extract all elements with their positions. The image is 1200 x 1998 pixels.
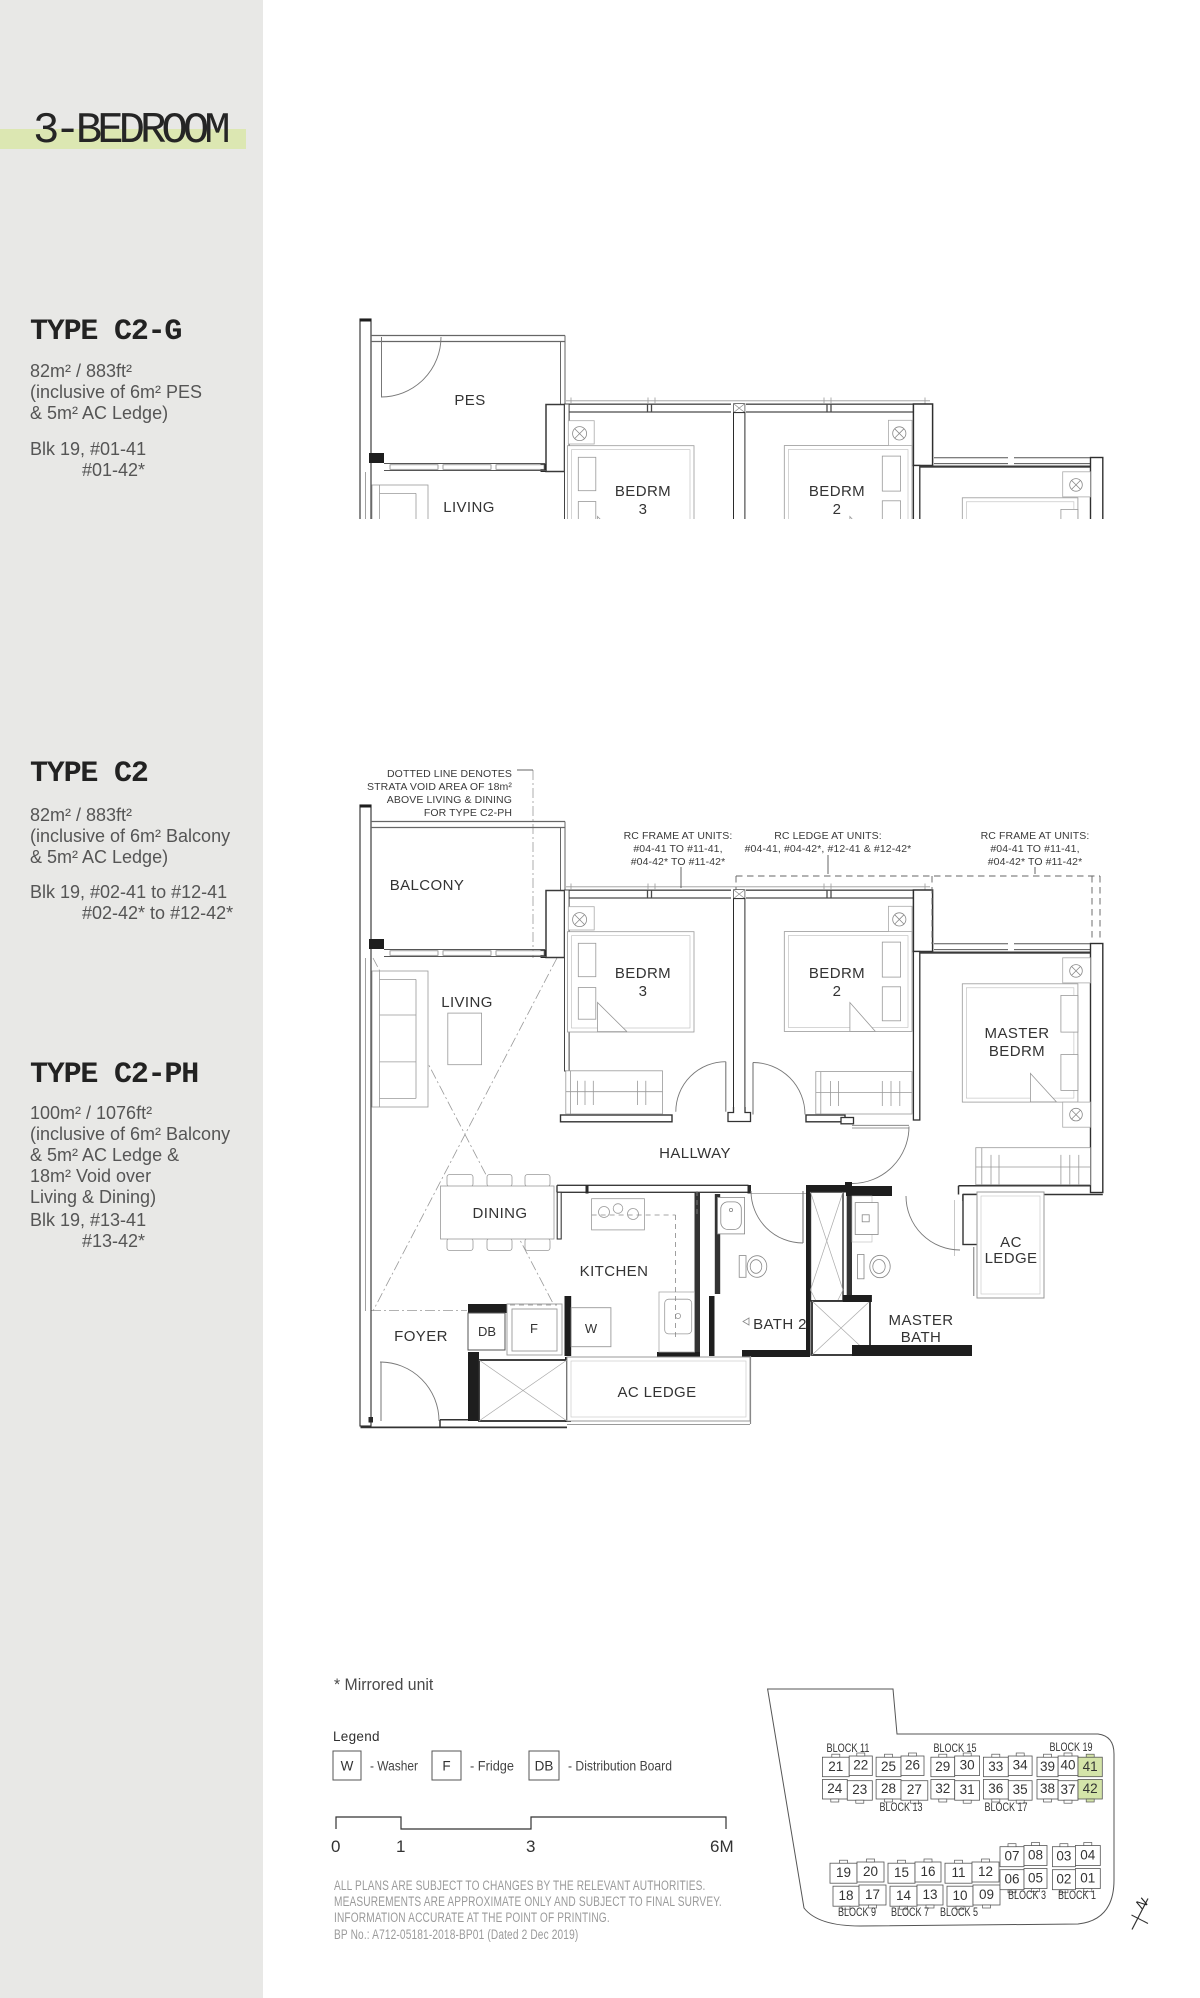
- svg-text:07: 07: [1004, 1849, 1019, 1864]
- svg-text:BLOCK 11: BLOCK 11: [827, 1741, 870, 1755]
- svg-text:25: 25: [881, 1759, 896, 1774]
- svg-text:BATH 2: BATH 2: [753, 1316, 807, 1333]
- svg-text:3: 3: [639, 501, 648, 518]
- svg-text:BLOCK 3: BLOCK 3: [1008, 1888, 1046, 1902]
- svg-text:09: 09: [979, 1887, 994, 1902]
- svg-text:F: F: [442, 1759, 450, 1774]
- svg-text:2: 2: [833, 983, 842, 1000]
- svg-text:N: N: [1133, 1895, 1150, 1913]
- svg-text:08: 08: [1028, 1847, 1043, 1862]
- svg-text:29: 29: [935, 1759, 950, 1774]
- svg-text:26: 26: [905, 1758, 920, 1773]
- svg-text:36: 36: [988, 1781, 1003, 1796]
- svg-text:19: 19: [836, 1865, 851, 1880]
- svg-text:MASTER: MASTER: [985, 1025, 1050, 1042]
- svg-text:22: 22: [853, 1758, 868, 1773]
- svg-text:DB: DB: [478, 1324, 496, 1339]
- svg-text:#04-41 TO #11-41,: #04-41 TO #11-41,: [990, 843, 1079, 855]
- svg-text:#04-42* TO #11-42*: #04-42* TO #11-42*: [631, 856, 726, 868]
- svg-text:#04-41 TO #11-41,: #04-41 TO #11-41,: [633, 843, 722, 855]
- svg-text:38: 38: [1040, 1781, 1055, 1796]
- svg-text:41: 41: [1083, 1759, 1098, 1774]
- svg-text:05: 05: [1028, 1870, 1043, 1885]
- svg-text:03: 03: [1056, 1849, 1071, 1864]
- svg-text:HALLWAY: HALLWAY: [659, 1145, 731, 1162]
- svg-text:AC LEDGE: AC LEDGE: [617, 1384, 696, 1401]
- svg-text:11: 11: [951, 1865, 965, 1880]
- svg-text:37: 37: [1060, 1782, 1075, 1797]
- svg-text:28: 28: [881, 1781, 896, 1796]
- svg-text:STRATA VOID AREA OF 18m²: STRATA VOID AREA OF 18m²: [367, 781, 512, 793]
- svg-text:AC: AC: [1000, 1234, 1022, 1251]
- svg-text:0: 0: [331, 1837, 340, 1856]
- svg-text:3: 3: [639, 983, 648, 1000]
- svg-text:6M: 6M: [710, 1837, 734, 1856]
- svg-text:12: 12: [978, 1864, 993, 1879]
- svg-text:BATH: BATH: [901, 1329, 942, 1346]
- svg-text:06: 06: [1004, 1872, 1019, 1887]
- svg-text:42: 42: [1083, 1781, 1098, 1796]
- svg-text:BLOCK 7: BLOCK 7: [891, 1905, 929, 1919]
- svg-text:DOTTED LINE DENOTES: DOTTED LINE DENOTES: [387, 768, 512, 780]
- svg-text:21: 21: [828, 1759, 843, 1774]
- svg-text:DINING: DINING: [473, 1205, 528, 1222]
- svg-text:02: 02: [1056, 1872, 1071, 1887]
- svg-text:BLOCK 19: BLOCK 19: [1050, 1740, 1093, 1754]
- svg-text:23: 23: [852, 1782, 867, 1797]
- svg-text:34: 34: [1013, 1758, 1029, 1773]
- svg-text:BLOCK 13: BLOCK 13: [880, 1800, 923, 1814]
- svg-text:10: 10: [952, 1888, 967, 1903]
- svg-text:BEDRM: BEDRM: [615, 965, 671, 982]
- svg-text:LIVING: LIVING: [441, 994, 493, 1011]
- svg-text:BLOCK 9: BLOCK 9: [838, 1905, 876, 1919]
- svg-text:MASTER: MASTER: [889, 1312, 954, 1329]
- svg-text:27: 27: [907, 1782, 922, 1797]
- svg-text:1: 1: [396, 1837, 405, 1856]
- svg-text:BEDRM: BEDRM: [615, 483, 671, 500]
- svg-text:BEDRM: BEDRM: [809, 965, 865, 982]
- svg-text:BEDRM: BEDRM: [809, 483, 865, 500]
- svg-text:01: 01: [1080, 1870, 1095, 1885]
- svg-text:RC FRAME AT UNITS:: RC FRAME AT UNITS:: [981, 830, 1090, 842]
- svg-text:31: 31: [960, 1782, 975, 1797]
- svg-text:- Washer: - Washer: [370, 1759, 418, 1774]
- svg-text:30: 30: [960, 1758, 975, 1773]
- svg-text:39: 39: [1040, 1759, 1055, 1774]
- svg-text:13: 13: [922, 1887, 937, 1902]
- svg-text:BALCONY: BALCONY: [390, 877, 465, 894]
- svg-text:RC LEDGE AT UNITS:: RC LEDGE AT UNITS:: [774, 830, 882, 842]
- svg-text:#04-42* TO #11-42*: #04-42* TO #11-42*: [988, 856, 1083, 868]
- svg-text:BLOCK 5: BLOCK 5: [940, 1905, 978, 1919]
- svg-text:- Fridge: - Fridge: [470, 1759, 514, 1774]
- svg-text:DB: DB: [535, 1759, 554, 1774]
- svg-text:17: 17: [865, 1887, 880, 1902]
- svg-text:LIVING: LIVING: [443, 499, 495, 516]
- svg-text:35: 35: [1013, 1782, 1028, 1797]
- svg-text:F: F: [530, 1321, 538, 1336]
- svg-text:16: 16: [920, 1864, 935, 1879]
- svg-text:FOYER: FOYER: [394, 1328, 448, 1345]
- svg-text:BEDRM: BEDRM: [989, 1043, 1045, 1060]
- svg-text:BLOCK 17: BLOCK 17: [985, 1800, 1028, 1814]
- svg-text:RC FRAME AT UNITS:: RC FRAME AT UNITS:: [624, 830, 733, 842]
- svg-text:40: 40: [1060, 1758, 1075, 1773]
- svg-text:32: 32: [935, 1781, 950, 1796]
- svg-text:2: 2: [833, 501, 842, 518]
- svg-text:W: W: [585, 1321, 598, 1336]
- svg-text:04: 04: [1080, 1847, 1096, 1862]
- svg-text:BLOCK 15: BLOCK 15: [934, 1741, 977, 1755]
- svg-text:24: 24: [827, 1781, 843, 1796]
- svg-text:15: 15: [894, 1865, 909, 1880]
- svg-text:#04-41, #04-42*, #12-41 & #12-: #04-41, #04-42*, #12-41 & #12-42*: [745, 843, 912, 855]
- svg-text:- Distribution Board: - Distribution Board: [568, 1759, 672, 1774]
- svg-text:18: 18: [838, 1888, 853, 1903]
- svg-text:3: 3: [526, 1837, 535, 1856]
- svg-text:FOR TYPE C2-PH: FOR TYPE C2-PH: [424, 807, 512, 819]
- svg-text:20: 20: [863, 1864, 878, 1879]
- svg-text:14: 14: [896, 1888, 912, 1903]
- svg-text:W: W: [341, 1759, 354, 1774]
- svg-text:PES: PES: [454, 392, 485, 409]
- svg-text:LEDGE: LEDGE: [985, 1250, 1038, 1267]
- svg-text:ABOVE LIVING & DINING: ABOVE LIVING & DINING: [387, 794, 512, 806]
- svg-text:33: 33: [988, 1759, 1003, 1774]
- svg-text:BLOCK 1: BLOCK 1: [1058, 1888, 1096, 1902]
- svg-text:KITCHEN: KITCHEN: [580, 1263, 649, 1280]
